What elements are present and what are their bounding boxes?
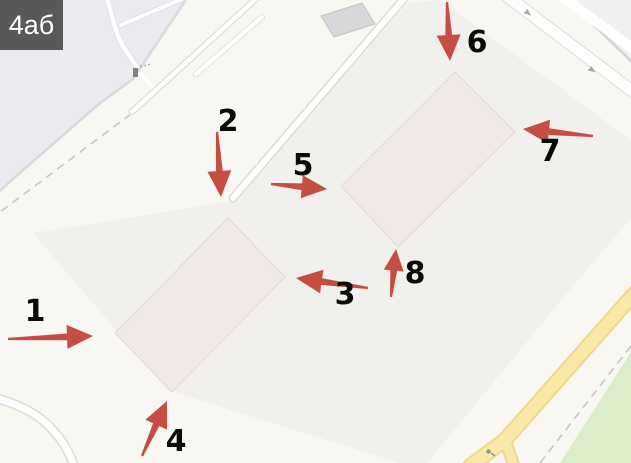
map-area-label: 4аб xyxy=(0,0,63,50)
marker-label-2: 2 xyxy=(218,107,239,137)
marker-label-4: 4 xyxy=(166,427,187,457)
basemap xyxy=(0,0,631,463)
marker-label-5: 5 xyxy=(293,151,314,181)
map-canvas[interactable]: 12345678 4аб xyxy=(0,0,631,463)
marker-label-7: 7 xyxy=(540,137,561,167)
marker-label-8: 8 xyxy=(405,259,426,289)
marker-label-3: 3 xyxy=(335,280,356,310)
marker-label-1: 1 xyxy=(25,297,46,327)
map-area-label-text: 4аб xyxy=(9,10,55,41)
marker-label-6: 6 xyxy=(467,28,488,58)
